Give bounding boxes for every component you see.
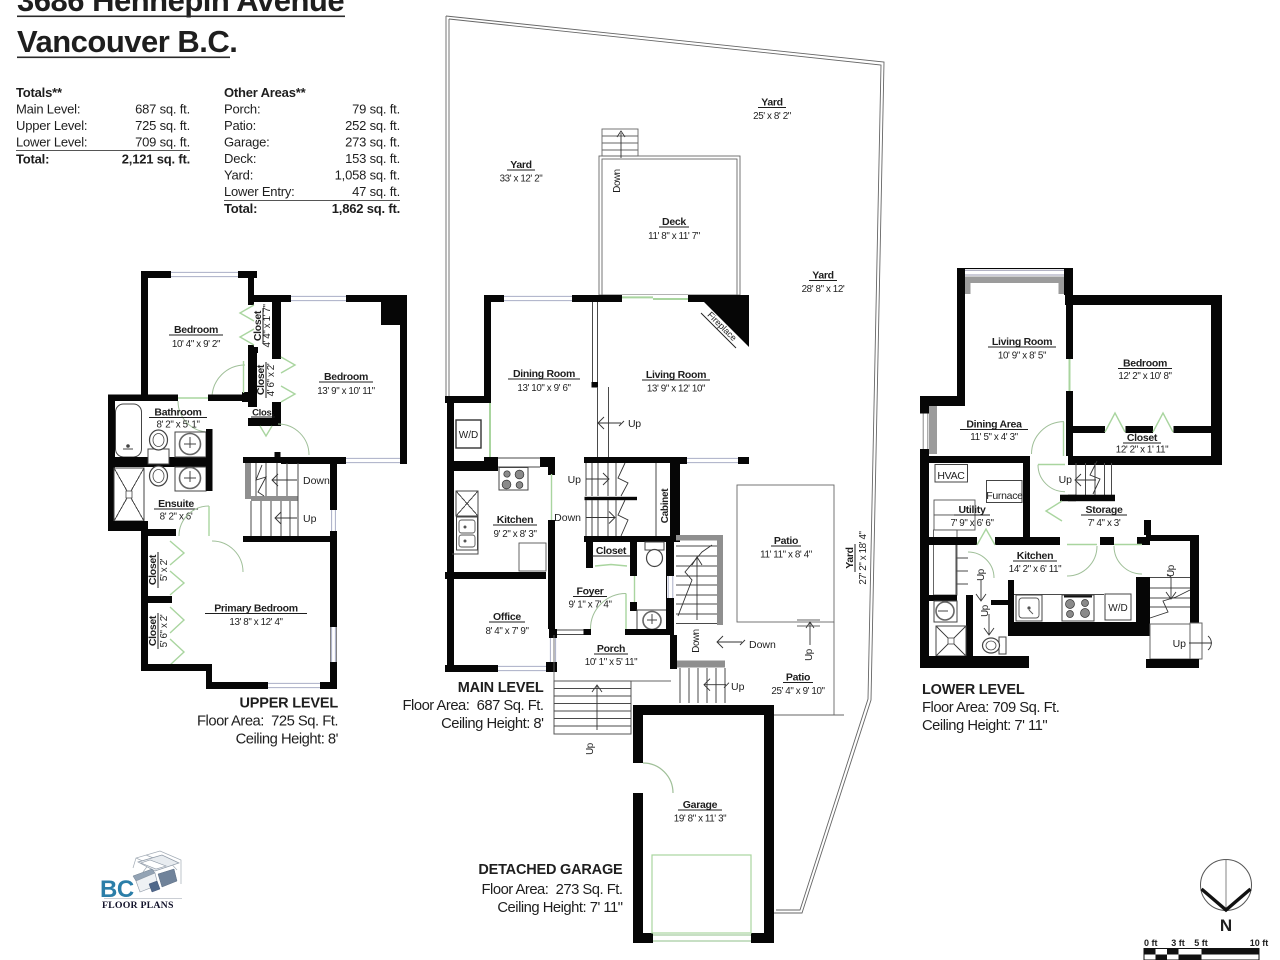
svg-text:Yard:: Yard:: [224, 168, 253, 183]
svg-text:Bedroom: Bedroom: [174, 324, 218, 336]
svg-text:Ceiling Height: 8': Ceiling Height: 8': [236, 732, 339, 748]
svg-text:LOWER LEVEL: LOWER LEVEL: [922, 682, 1025, 698]
svg-text:Up: Up: [1173, 638, 1187, 650]
svg-text:Foyer: Foyer: [576, 586, 603, 598]
svg-text:27' 2" x 18' 4": 27' 2" x 18' 4": [858, 530, 869, 584]
svg-text:5' 6" x 2': 5' 6" x 2': [159, 614, 170, 647]
svg-text:Bathroom: Bathroom: [154, 407, 201, 419]
svg-text:Deck:: Deck:: [224, 151, 256, 166]
svg-text:HVAC: HVAC: [937, 470, 965, 482]
svg-text:FLOOR PLANS: FLOOR PLANS: [102, 900, 174, 911]
svg-text:Porch:: Porch:: [224, 102, 260, 117]
svg-text:Floor Area: 725 Sq. Ft.: Floor Area: 725 Sq. Ft.: [197, 714, 338, 730]
svg-text:Kitchen: Kitchen: [497, 514, 533, 526]
svg-text:Up: Up: [731, 681, 745, 693]
svg-text:28' 8" x 12': 28' 8" x 12': [802, 284, 845, 295]
svg-text:Main Level:: Main Level:: [16, 102, 80, 117]
svg-text:3 ft: 3 ft: [1171, 938, 1185, 948]
svg-text:2,121 sq. ft.: 2,121 sq. ft.: [122, 152, 190, 167]
svg-text:Down: Down: [749, 639, 776, 651]
svg-text:153 sq. ft.: 153 sq. ft.: [345, 151, 400, 166]
svg-text:Lower Entry:: Lower Entry:: [224, 184, 295, 199]
svg-text:Closet: Closet: [147, 615, 159, 646]
svg-text:Dining Area: Dining Area: [966, 419, 1022, 431]
svg-text:709 sq. ft.: 709 sq. ft.: [135, 135, 190, 150]
svg-text:Garage:: Garage:: [224, 135, 270, 150]
svg-text:12' 2" x 1' 11": 12' 2" x 1' 11": [1116, 445, 1169, 456]
svg-text:Up: Up: [303, 513, 317, 525]
svg-text:Kitchen: Kitchen: [1017, 550, 1053, 562]
svg-text:47 sq. ft.: 47 sq. ft.: [352, 184, 400, 199]
svg-text:13' 9" x 12' 10": 13' 9" x 12' 10": [647, 384, 706, 395]
svg-text:Furnace: Furnace: [986, 490, 1023, 502]
svg-text:252 sq. ft.: 252 sq. ft.: [345, 118, 400, 133]
svg-text:Yard: Yard: [510, 159, 532, 171]
svg-text:79 sq. ft.: 79 sq. ft.: [352, 102, 400, 117]
svg-text:Up: Up: [628, 418, 641, 430]
svg-text:13' 8" x 12' 4": 13' 8" x 12' 4": [229, 617, 283, 628]
svg-text:Closet: Closet: [147, 554, 159, 585]
svg-text:Totals**: Totals**: [16, 85, 63, 100]
svg-text:Up: Up: [976, 568, 987, 581]
svg-text:Down: Down: [554, 512, 581, 524]
svg-text:7' 9" x 6' 6": 7' 9" x 6' 6": [950, 518, 994, 529]
svg-text:Floor Area: 273 Sq. Ft.: Floor Area: 273 Sq. Ft.: [482, 882, 623, 898]
svg-text:Lower Level:: Lower Level:: [16, 135, 87, 150]
svg-text:UPPER LEVEL: UPPER LEVEL: [239, 696, 338, 712]
svg-text:Bedroom: Bedroom: [1123, 358, 1167, 370]
svg-text:W/D: W/D: [459, 430, 478, 441]
svg-text:9' 1" x 7' 4": 9' 1" x 7' 4": [568, 600, 612, 611]
svg-text:Closet: Closet: [1127, 432, 1158, 444]
svg-text:14' 2" x 6' 11": 14' 2" x 6' 11": [1009, 564, 1062, 575]
svg-text:Total:: Total:: [16, 152, 49, 167]
svg-text:Primary Bedroom: Primary Bedroom: [214, 603, 298, 615]
svg-text:Cabinet: Cabinet: [660, 488, 671, 524]
svg-text:1,058 sq. ft.: 1,058 sq. ft.: [335, 168, 400, 183]
svg-text:273 sq. ft.: 273 sq. ft.: [345, 135, 400, 150]
svg-text:Other Areas**: Other Areas**: [224, 85, 307, 100]
svg-text:Down: Down: [303, 475, 330, 487]
svg-text:Living Room: Living Room: [992, 336, 1052, 348]
svg-text:MAIN LEVEL: MAIN LEVEL: [458, 680, 544, 696]
svg-text:Down: Down: [691, 629, 702, 652]
svg-text:DETACHED GARAGE: DETACHED GARAGE: [478, 862, 623, 878]
svg-text:11' 11" x 8' 4": 11' 11" x 8' 4": [760, 550, 813, 561]
svg-text:10 ft: 10 ft: [1250, 938, 1269, 948]
svg-text:Patio: Patio: [774, 535, 798, 547]
svg-text:7' 4" x 3': 7' 4" x 3': [1088, 518, 1121, 529]
svg-text:9' 2" x 8' 3": 9' 2" x 8' 3": [493, 529, 537, 540]
svg-text:Office: Office: [493, 611, 521, 623]
svg-text:W/D: W/D: [1108, 603, 1127, 614]
svg-text:Yard: Yard: [812, 270, 834, 282]
svg-text:Yard: Yard: [844, 547, 856, 569]
svg-text:10' 9" x 8' 5": 10' 9" x 8' 5": [998, 351, 1047, 362]
svg-text:Patio: Patio: [786, 672, 810, 684]
svg-text:11' 5" x 4' 3": 11' 5" x 4' 3": [970, 432, 1018, 443]
svg-text:13' 10" x 9' 6": 13' 10" x 9' 6": [517, 383, 571, 394]
svg-text:19' 8" x 11' 3": 19' 8" x 11' 3": [674, 814, 727, 825]
svg-text:Down: Down: [612, 169, 623, 192]
svg-text:Utility: Utility: [958, 504, 986, 516]
svg-text:12' 2" x 10' 8": 12' 2" x 10' 8": [1118, 371, 1172, 382]
svg-text:BC: BC: [100, 876, 134, 903]
svg-text:4' 4" x 1' 7": 4' 4" x 1' 7": [262, 304, 273, 348]
svg-text:25' x 8' 2": 25' x 8' 2": [753, 111, 792, 122]
svg-text:N: N: [1220, 916, 1232, 935]
svg-text:Storage: Storage: [1086, 504, 1123, 516]
svg-text:25' 4" x 9' 10": 25' 4" x 9' 10": [771, 686, 825, 697]
svg-text:Garage: Garage: [683, 799, 718, 811]
svg-text:Ceiling Height: 8': Ceiling Height: 8': [441, 716, 544, 732]
svg-text:Bedroom: Bedroom: [324, 371, 368, 383]
svg-text:Porch: Porch: [597, 643, 625, 655]
svg-text:10' 4" x 9' 2": 10' 4" x 9' 2": [172, 339, 221, 350]
svg-text:11' 8" x 11' 7": 11' 8" x 11' 7": [648, 231, 701, 242]
svg-text:8' 4" x 7' 9": 8' 4" x 7' 9": [485, 626, 529, 637]
svg-text:Closet: Closet: [596, 545, 627, 557]
svg-text:Floor Area: 709 Sq. Ft.: Floor Area: 709 Sq. Ft.: [922, 700, 1059, 716]
svg-text:687 sq. ft.: 687 sq. ft.: [135, 102, 190, 117]
svg-text:Ensuite: Ensuite: [158, 498, 194, 510]
svg-text:Dining Room: Dining Room: [513, 368, 575, 380]
svg-text:Ceiling Height: 7' 11": Ceiling Height: 7' 11": [922, 718, 1047, 734]
svg-text:Deck: Deck: [662, 216, 686, 228]
svg-text:0 ft: 0 ft: [1144, 938, 1158, 948]
svg-text:Up: Up: [1059, 474, 1073, 486]
svg-text:3686 Hennepin Avenue: 3686 Hennepin Avenue: [17, 0, 344, 18]
svg-text:5 ft: 5 ft: [1194, 938, 1208, 948]
svg-text:Up: Up: [568, 474, 582, 486]
svg-text:Living Room: Living Room: [646, 369, 706, 381]
svg-text:Patio:: Patio:: [224, 118, 256, 133]
svg-text:Upper Level:: Upper Level:: [16, 118, 87, 133]
svg-text:Up: Up: [585, 742, 596, 755]
svg-text:10' 1" x 5' 11": 10' 1" x 5' 11": [585, 657, 638, 668]
svg-text:8' 2" x 5' 1": 8' 2" x 5' 1": [156, 420, 200, 431]
svg-text:Ceiling Height: 7' 11": Ceiling Height: 7' 11": [497, 900, 622, 916]
svg-text:5' x 2': 5' x 2': [159, 558, 170, 581]
svg-text:4' 6" x 2': 4' 6" x 2': [266, 363, 277, 396]
svg-text:13' 9" x 10' 11": 13' 9" x 10' 11": [317, 386, 375, 397]
svg-text:33' x 12' 2": 33' x 12' 2": [500, 174, 544, 185]
svg-text:Total:: Total:: [224, 201, 257, 216]
svg-text:Floor Area: 687 Sq. Ft.: Floor Area: 687 Sq. Ft.: [403, 698, 544, 714]
svg-text:Yard: Yard: [761, 97, 783, 109]
svg-text:Vancouver B.C.: Vancouver B.C.: [17, 24, 237, 59]
svg-text:8' 2" x 6': 8' 2" x 6': [160, 512, 193, 523]
svg-text:1,862 sq. ft.: 1,862 sq. ft.: [332, 201, 400, 216]
svg-text:Up: Up: [804, 648, 815, 661]
svg-text:725 sq. ft.: 725 sq. ft.: [135, 118, 190, 133]
